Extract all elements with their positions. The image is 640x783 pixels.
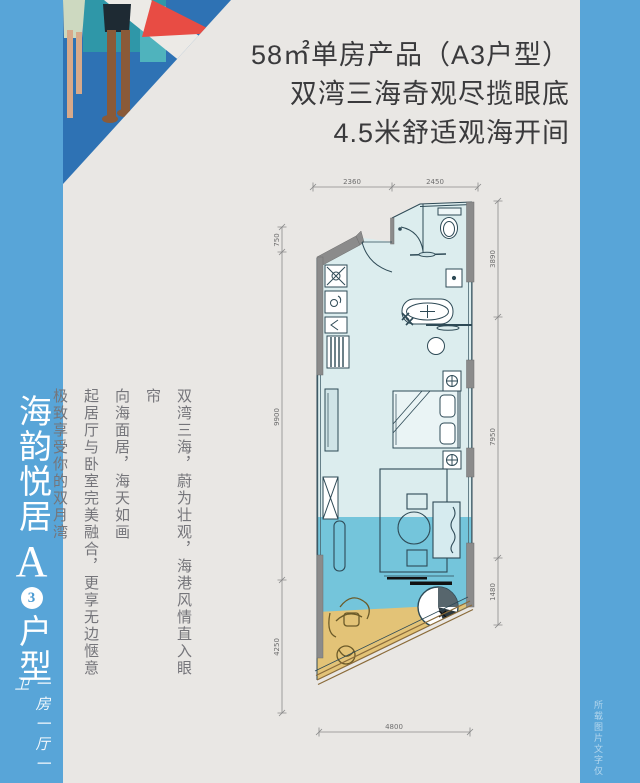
dim-right-3: 1480 [489, 583, 497, 601]
door-handle-dot [399, 228, 402, 231]
headline-line-2: 双湾三海奇观尽揽眼底 [251, 75, 570, 114]
headline: 58㎡单房产品（A3户型） 双湾三海奇观尽揽眼底 4.5米舒适观海开间 [251, 36, 570, 153]
headline-line-3: 4.5米舒适观海开间 [251, 114, 570, 153]
disclaimer-watermark: 所载图片文字仅 [592, 700, 605, 777]
floorplan: 2360 2450 750 9900 4250 3890 7950 1480 4… [270, 165, 510, 745]
copy-column-3: 起居厅与卧室完美融合，更享无边惬意 [74, 388, 105, 688]
dim-left-2: 9900 [273, 408, 281, 426]
beach-illustration [63, 0, 231, 184]
wall-left-upper [317, 257, 323, 375]
copy-column-4: 极致享受你的双月湾 [43, 388, 74, 688]
kitchen [325, 265, 349, 368]
balcony-door-track-2 [410, 582, 452, 586]
dim-left-1: 750 [273, 233, 281, 246]
copy-column-2: 向海面居，海天如画 [105, 388, 136, 688]
person2-foot [102, 115, 118, 123]
chair-stool [428, 338, 445, 355]
person1-leg2 [76, 32, 82, 94]
copy-column-1: 双湾三海，蔚为壮观，海港风情直入眼帘 [136, 388, 198, 688]
desk [325, 389, 338, 451]
heater-dot [452, 276, 455, 279]
fridge [327, 336, 349, 368]
person2-leg [107, 30, 116, 118]
dim-right-1: 3890 [489, 250, 497, 268]
dim-top-2: 2450 [426, 178, 444, 186]
person1-leg [67, 30, 73, 118]
person2-shorts [103, 4, 131, 32]
person2-foot2 [117, 109, 133, 117]
wall-right-3 [467, 448, 475, 477]
wall-right-2 [467, 360, 475, 388]
dim-right-2: 7950 [489, 428, 497, 446]
marketing-copy: 双湾三海，蔚为壮观，海港风情直入眼帘 向海面居，海天如画 起居厅与卧室完美融合，… [72, 388, 198, 688]
toilet-tank [438, 208, 461, 215]
dim-bottom-1: 4800 [385, 723, 403, 731]
kitchen-counter [325, 317, 347, 333]
dim-top-1: 2360 [343, 178, 361, 186]
room-config-label: 一房一厅一卫 [11, 676, 53, 783]
kitchen-sink [325, 291, 347, 313]
wall-left-lower [317, 555, 323, 658]
balcony-door-track-1 [387, 577, 427, 580]
pillow-2 [440, 423, 455, 444]
shower-head [419, 252, 435, 256]
chaise [433, 502, 460, 558]
unit-number-badge: 3 [21, 587, 43, 609]
wall-right-1 [467, 202, 475, 282]
person2-leg2 [121, 30, 130, 112]
pillow-1 [440, 395, 455, 417]
right-accent-bar [580, 0, 640, 783]
wall-entry [391, 218, 395, 244]
dim-left-3: 4250 [273, 638, 281, 656]
headline-line-1: 58㎡单房产品（A3户型） [251, 36, 570, 75]
